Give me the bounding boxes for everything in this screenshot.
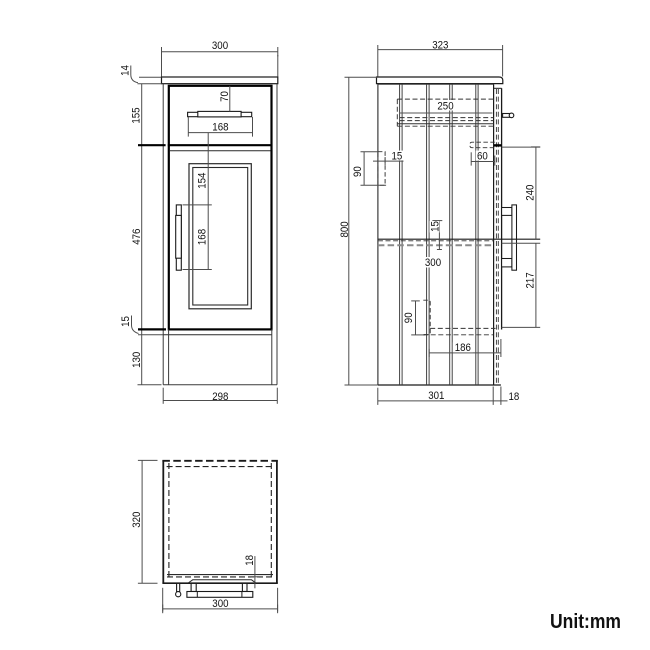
- svg-text:154: 154: [196, 173, 208, 189]
- svg-text:168: 168: [196, 229, 208, 245]
- svg-text:168: 168: [212, 121, 228, 133]
- svg-text:18: 18: [509, 391, 520, 403]
- svg-text:186: 186: [455, 342, 471, 354]
- svg-text:250: 250: [437, 100, 453, 112]
- svg-text:15: 15: [429, 221, 441, 232]
- svg-text:14: 14: [120, 65, 132, 76]
- svg-text:18: 18: [244, 555, 256, 566]
- svg-text:90: 90: [403, 312, 415, 323]
- svg-text:60: 60: [477, 150, 488, 162]
- svg-text:240: 240: [525, 185, 537, 201]
- svg-text:298: 298: [212, 391, 228, 403]
- svg-text:217: 217: [525, 272, 537, 288]
- svg-text:130: 130: [131, 352, 143, 368]
- svg-text:323: 323: [432, 39, 448, 51]
- svg-text:300: 300: [425, 257, 441, 269]
- svg-text:15: 15: [392, 150, 403, 162]
- svg-text:15: 15: [120, 316, 132, 327]
- svg-text:70: 70: [219, 91, 231, 102]
- svg-text:155: 155: [131, 107, 143, 123]
- svg-text:300: 300: [212, 598, 228, 610]
- svg-text:800: 800: [339, 221, 351, 237]
- svg-text:300: 300: [212, 40, 228, 52]
- svg-text:301: 301: [428, 390, 444, 402]
- svg-text:476: 476: [131, 229, 143, 245]
- svg-text:320: 320: [131, 512, 143, 528]
- svg-text:Unit:mm: Unit:mm: [550, 611, 621, 633]
- svg-text:90: 90: [352, 166, 364, 177]
